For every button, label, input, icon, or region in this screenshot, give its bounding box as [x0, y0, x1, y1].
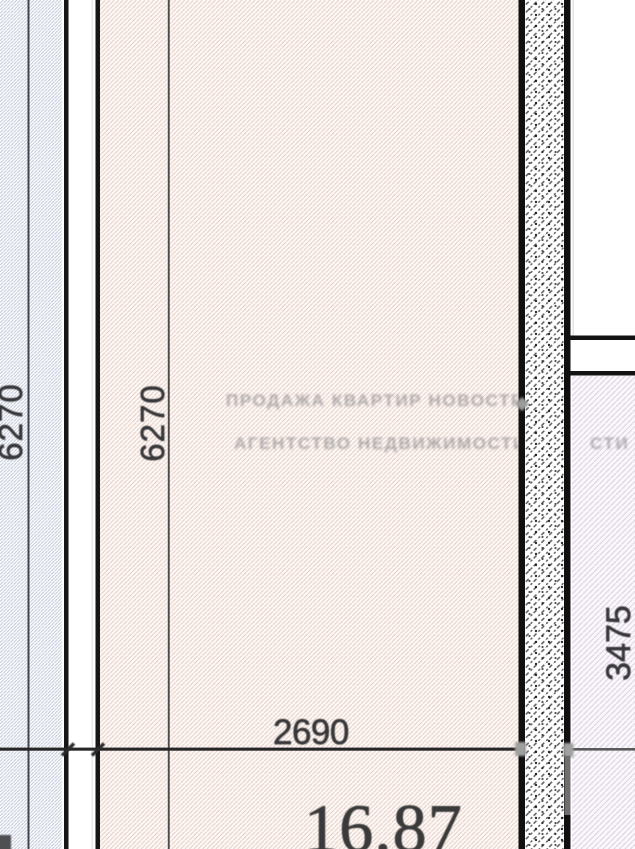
svg-text:6270: 6270: [0, 383, 29, 460]
svg-text:16.87: 16.87: [304, 790, 463, 849]
svg-text:6270: 6270: [134, 384, 171, 461]
svg-text:3475: 3475: [600, 605, 635, 681]
svg-text:2690: 2690: [273, 713, 349, 752]
